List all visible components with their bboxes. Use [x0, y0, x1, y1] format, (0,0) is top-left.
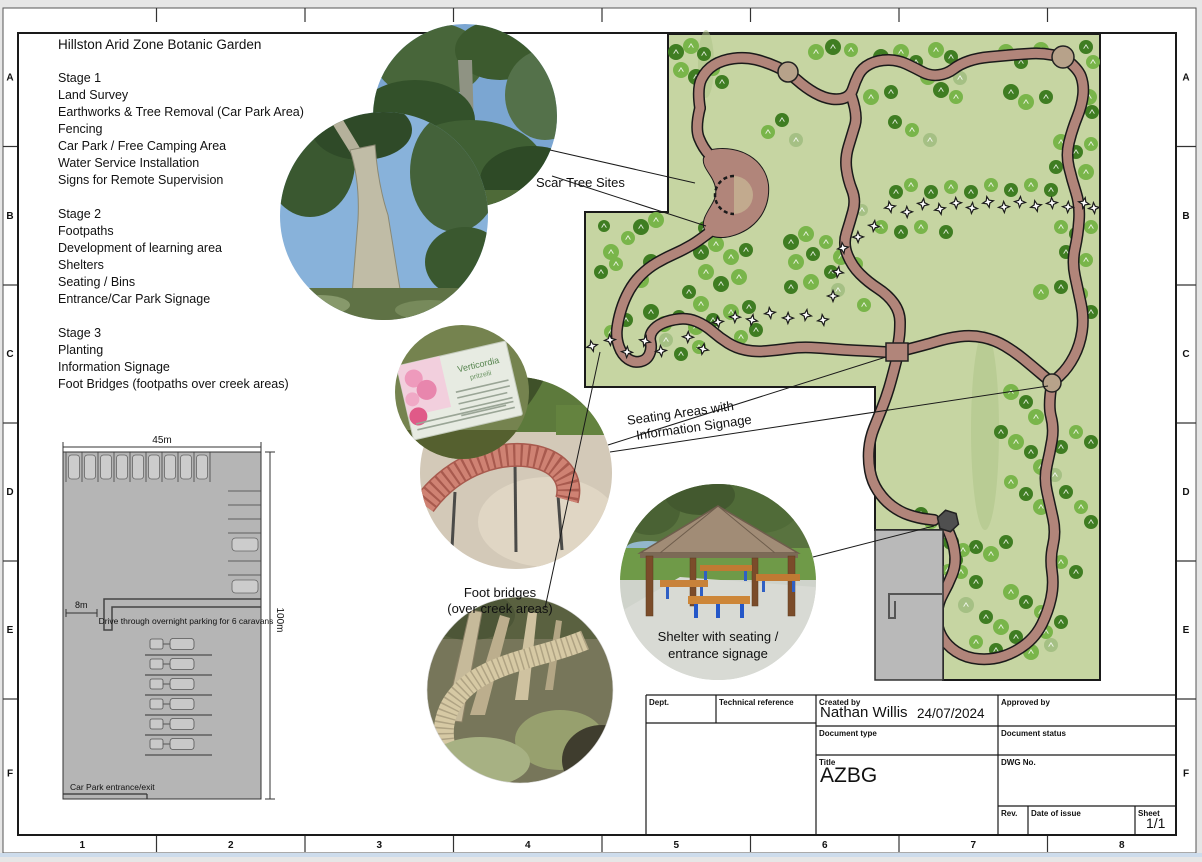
caravan-icon: [170, 639, 194, 650]
stage-item: Development of learning area: [58, 240, 304, 257]
tree-symbol: [1028, 409, 1044, 425]
tree-symbol: [683, 38, 699, 54]
titleblock-created-by-value: Nathan Willis: [820, 704, 908, 721]
tree-symbol: [803, 274, 819, 290]
zone-row-label: C: [6, 349, 13, 360]
tree-symbol: [713, 276, 729, 292]
tree-symbol: [969, 575, 983, 589]
tree-symbol: [1084, 220, 1098, 234]
dim-width-label: 45m: [152, 435, 171, 446]
tree-symbol: [984, 178, 998, 192]
stage-group: Stage 1Land SurveyEarthworks & Tree Remo…: [58, 70, 304, 189]
tree-symbol: [621, 231, 635, 245]
zone-row-label: D: [1182, 487, 1189, 498]
tree-symbol: [808, 44, 824, 60]
tree-symbol: [994, 425, 1008, 439]
tree-symbol: [1059, 485, 1073, 499]
caravan-icon: [170, 679, 194, 690]
tree-symbol: [1054, 280, 1068, 294]
caravan-icon: [170, 699, 194, 710]
stage-title: Stage 1: [58, 70, 304, 87]
tree-symbol: [969, 540, 983, 554]
tree-symbol: [668, 44, 684, 60]
tree-symbol: [844, 43, 858, 57]
car-icon: [69, 455, 80, 479]
tree-symbol: [674, 347, 688, 361]
stage-item: Planting: [58, 342, 304, 359]
stage-item: Seating / Bins: [58, 274, 304, 291]
tree-symbol: [949, 90, 963, 104]
tree-symbol: [1004, 183, 1018, 197]
caravan-icon: [170, 659, 194, 670]
tree-symbol: [1085, 105, 1099, 119]
stage-item: Information Signage: [58, 359, 304, 376]
titleblock-document-type-label: Document type: [819, 729, 877, 738]
tree-symbol: [928, 42, 944, 58]
tree-symbol: [715, 75, 729, 89]
tree-symbol: [933, 82, 949, 98]
project-title: Hillston Arid Zone Botanic Garden: [58, 37, 261, 52]
tree-symbol: [894, 225, 908, 239]
stage-title: Stage 3: [58, 325, 304, 342]
zone-row-label: C: [1182, 349, 1189, 360]
tree-symbol: [1078, 164, 1094, 180]
stage-group: Stage 2FootpathsDevelopment of learning …: [58, 206, 304, 308]
tree-symbol: [904, 178, 918, 192]
tree-symbol: [1054, 615, 1068, 629]
tree-symbol: [889, 185, 903, 199]
tree-symbol: [964, 185, 978, 199]
zone-row-label: A: [6, 72, 13, 83]
tree-symbol: [1074, 500, 1088, 514]
car-icon: [197, 455, 208, 479]
window-edge: [0, 853, 1202, 857]
titleblock-sheet-value: 1/1: [1146, 815, 1165, 831]
titleblock-dwg-no-label: DWG No.: [1001, 758, 1036, 767]
tree-symbol: [682, 285, 696, 299]
tree-symbol: [857, 298, 871, 312]
tree-symbol: [1003, 584, 1019, 600]
car-icon: [150, 659, 163, 669]
car-icon: [181, 455, 192, 479]
tree-symbol: [905, 123, 919, 137]
stage-item: Foot Bridges (footpaths over creek areas…: [58, 376, 304, 393]
zone-row-label: F: [7, 769, 13, 780]
tree-symbol: [761, 125, 775, 139]
tree-symbol: [659, 333, 673, 347]
tree-symbol: [819, 235, 833, 249]
tree-symbol: [697, 47, 711, 61]
tree-symbol: [888, 115, 902, 129]
zone-row-label: B: [1182, 211, 1189, 222]
tree-symbol: [731, 269, 747, 285]
zone-col-label: 1: [79, 840, 85, 851]
zone-col-label: 5: [673, 840, 679, 851]
tree-symbol: [1008, 434, 1024, 450]
car-icon: [165, 455, 176, 479]
stage-item: Land Survey: [58, 87, 304, 104]
tree-symbol: [698, 264, 714, 280]
zone-col-label: 8: [1119, 840, 1125, 851]
tree-symbol: [993, 619, 1009, 635]
stage-item: Fencing: [58, 121, 304, 138]
zone-row-label: B: [6, 211, 13, 222]
car-icon: [150, 639, 163, 649]
stage-list: Stage 1Land SurveyEarthworks & Tree Remo…: [58, 70, 304, 410]
tree-symbol: [643, 304, 659, 320]
car-icon: [150, 679, 163, 689]
car-icon: [150, 739, 163, 749]
dim-height-label: 100m: [274, 607, 285, 632]
car-icon: [232, 580, 258, 593]
stage-item: Water Service Installation: [58, 155, 304, 172]
map-car-park-area: [875, 530, 943, 680]
drawing-sheet: 12345678AABBCCDDEEFF 45m100m8mDrive thro…: [0, 0, 1202, 857]
tree-symbol: [723, 249, 739, 265]
stage-item: Footpaths: [58, 223, 304, 240]
tree-symbol: [1069, 425, 1083, 439]
car-icon: [150, 699, 163, 709]
caravan-icon: [170, 719, 194, 730]
tree-symbol: [1084, 137, 1098, 151]
zone-row-label: F: [1183, 769, 1189, 780]
tree-symbol: [863, 89, 879, 105]
tree-symbol: [673, 62, 689, 78]
zone-col-label: 2: [228, 840, 234, 851]
tree-symbol: [999, 535, 1013, 549]
tree-symbol: [924, 185, 938, 199]
tree-symbol: [1004, 475, 1018, 489]
callout-scar-tree-sites: Scar Tree Sites: [536, 175, 625, 190]
tree-symbol: [969, 635, 983, 649]
titleblock-document-status-label: Document status: [1001, 729, 1066, 738]
tree-symbol: [633, 219, 649, 235]
tree-symbol: [798, 226, 814, 242]
titleblock-rev-label: Rev.: [1001, 809, 1017, 818]
tree-symbol: [1003, 84, 1019, 100]
tree-symbol: [784, 280, 798, 294]
titleblock-approved-by-label: Approved by: [1001, 698, 1050, 707]
tree-symbol: [1019, 487, 1033, 501]
tree-symbol: [914, 220, 928, 234]
stage-title: Stage 2: [58, 206, 304, 223]
stage-item: Entrance/Car Park Signage: [58, 291, 304, 308]
tree-symbol: [742, 300, 756, 314]
zone-row-label: D: [6, 487, 13, 498]
tree-symbol: [1079, 40, 1093, 54]
caravan-icon: [170, 739, 194, 750]
callout-foot-bridges: Foot bridges (over creek areas): [428, 585, 572, 617]
tree-symbol: [1019, 595, 1033, 609]
stage-item: Signs for Remote Supervision: [58, 172, 304, 189]
car-icon: [133, 455, 144, 479]
tree-symbol: [923, 133, 937, 147]
tree-symbol: [1054, 220, 1068, 234]
tree-symbol: [1019, 395, 1033, 409]
titleblock-date-of-issue-label: Date of issue: [1031, 809, 1081, 818]
titleblock-date-value: 24/07/2024: [917, 706, 985, 721]
seating-node: [886, 343, 908, 361]
tree-symbol: [958, 597, 974, 613]
tree-symbol: [609, 257, 623, 271]
tree-symbol: [1024, 445, 1038, 459]
tree-symbol: [1084, 515, 1098, 529]
entrance-exit-label: Car Park entrance/exit: [70, 782, 155, 792]
car-icon: [150, 719, 163, 729]
tree-symbol: [1024, 178, 1038, 192]
tree-symbol: [944, 180, 958, 194]
tree-symbol: [1049, 160, 1063, 174]
tree-symbol: [1039, 90, 1053, 104]
tree-symbol: [884, 85, 898, 99]
tree-symbol: [789, 133, 803, 147]
tree-symbol: [1033, 284, 1049, 300]
tree-symbol: [648, 212, 664, 228]
titleblock-title-value: AZBG: [820, 764, 877, 788]
drive-through-label: Drive through overnight parking for 6 ca…: [99, 616, 274, 626]
zone-row-label: E: [1183, 625, 1190, 636]
tree-symbol: [939, 225, 953, 239]
tree-symbol: [983, 546, 999, 562]
car-icon: [232, 538, 258, 551]
zone-col-label: 6: [822, 840, 828, 851]
stage-item: Earthworks & Tree Removal (Car Park Area…: [58, 104, 304, 121]
tree-symbol: [598, 220, 610, 232]
zone-row-label: E: [7, 625, 14, 636]
tree-symbol: [775, 113, 789, 127]
dim-lane-label: 8m: [75, 600, 88, 610]
zone-row-label: A: [1182, 72, 1189, 83]
callout-shelter: Shelter with seating / entrance signage: [638, 628, 798, 662]
tree-symbol: [739, 243, 753, 257]
zone-col-label: 4: [525, 840, 531, 851]
tree-symbol: [594, 265, 608, 279]
car-icon: [117, 455, 128, 479]
stage-item: Shelters: [58, 257, 304, 274]
path-node: [778, 62, 798, 82]
tree-symbol: [1086, 55, 1100, 69]
tree-symbol: [788, 254, 804, 270]
tree-symbol: [1044, 183, 1058, 197]
car-icon: [149, 455, 160, 479]
tree-symbol: [979, 610, 993, 624]
path-node: [1052, 46, 1074, 68]
zone-col-label: 7: [970, 840, 976, 851]
zone-col-label: 3: [376, 840, 382, 851]
tree-symbol: [1044, 638, 1058, 652]
car-park-plan: 45m100m8mDrive through overnight parking…: [63, 435, 285, 799]
path-node: [1043, 374, 1061, 392]
titleblock-dept-label: Dept.: [649, 698, 669, 707]
tree-symbol: [825, 39, 841, 55]
tree-symbol: [1079, 253, 1093, 267]
tree-symbol: [1069, 565, 1083, 579]
car-icon: [85, 455, 96, 479]
tree-symbol: [693, 296, 709, 312]
tree-symbol: [1084, 435, 1098, 449]
stage-item: Car Park / Free Camping Area: [58, 138, 304, 155]
stage-group: Stage 3PlantingInformation SignageFoot B…: [58, 325, 304, 393]
tree-symbol: [783, 234, 799, 250]
car-icon: [101, 455, 112, 479]
titleblock-technical-reference-label: Technical reference: [719, 698, 794, 707]
tree-symbol: [806, 247, 820, 261]
tree-symbol: [1018, 94, 1034, 110]
